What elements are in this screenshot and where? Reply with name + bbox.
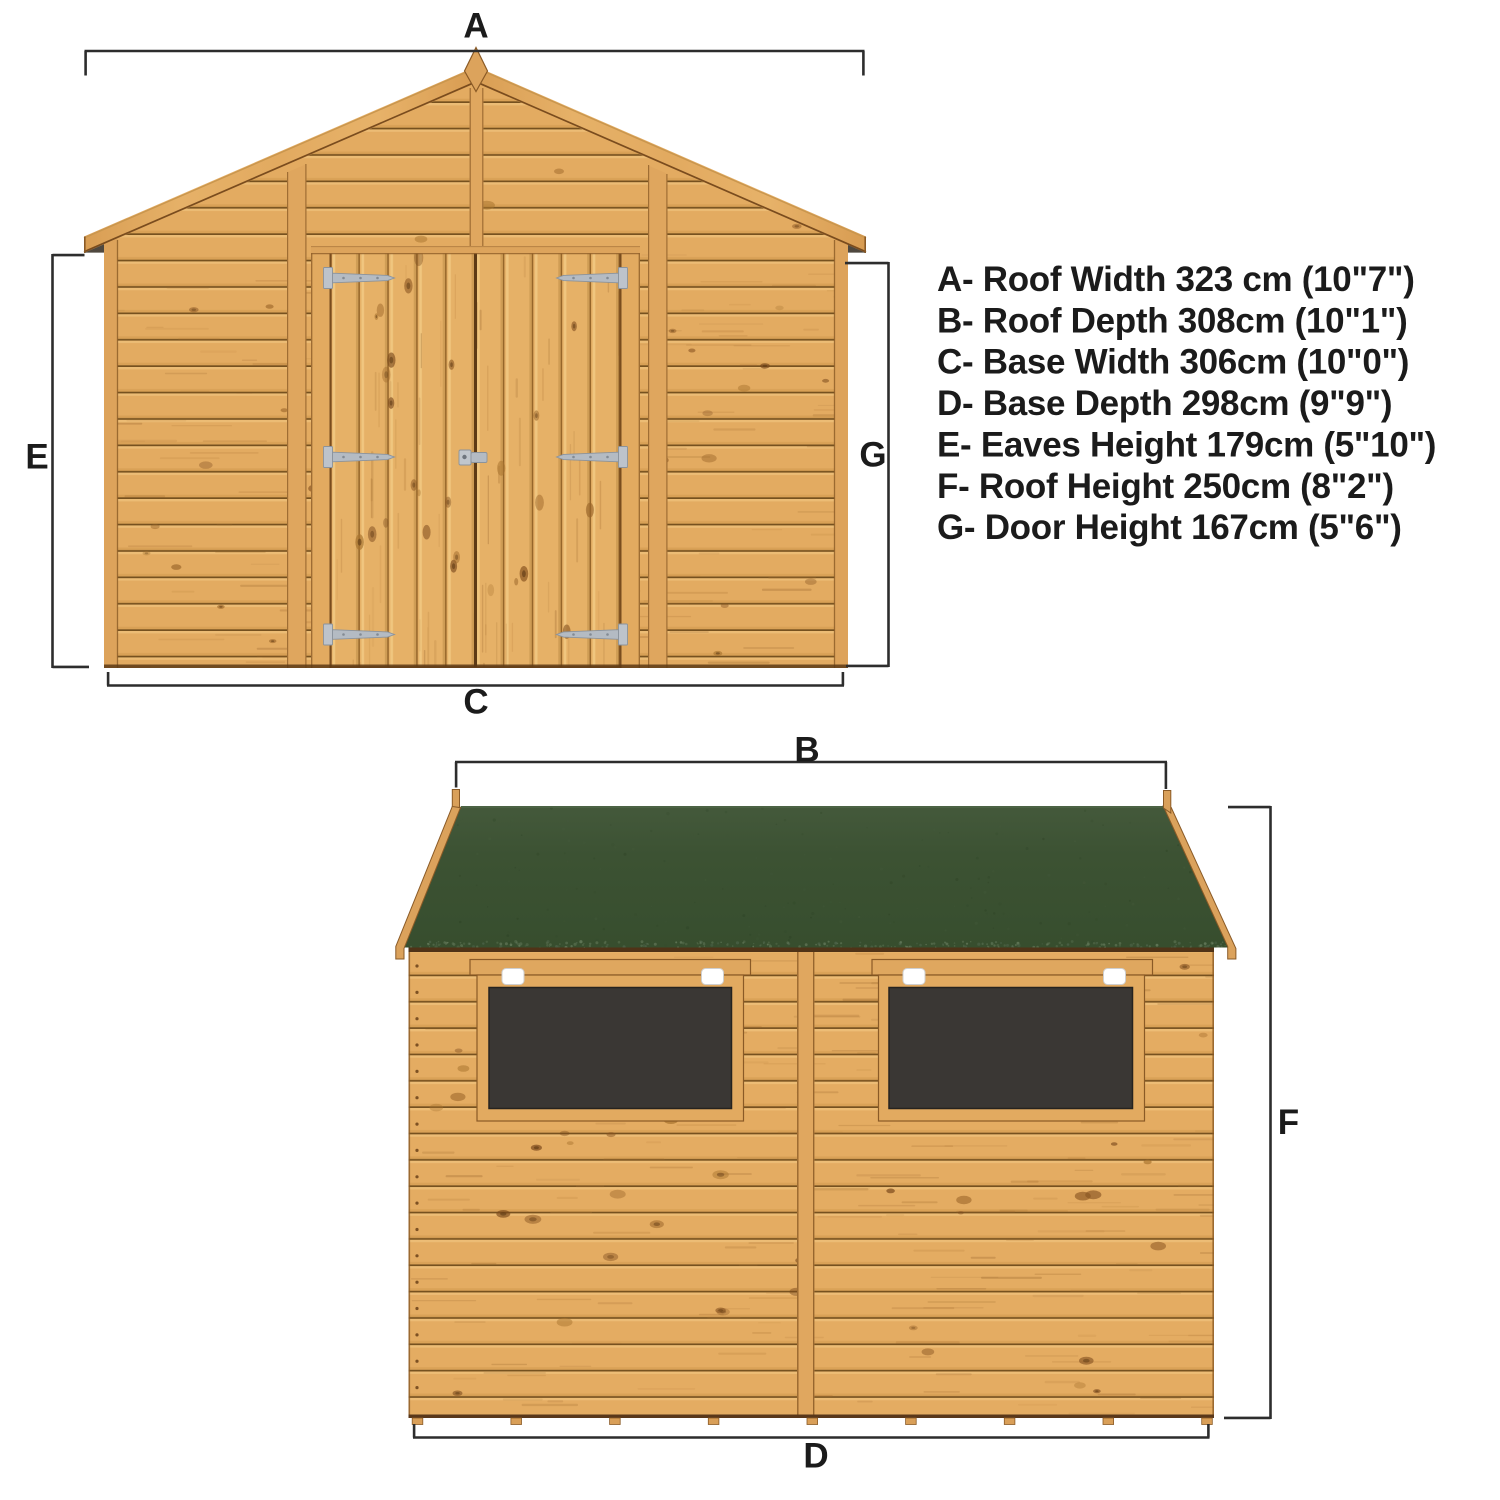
svg-text:B: B <box>794 731 819 770</box>
svg-text:C: C <box>463 683 488 722</box>
svg-text:F- Roof Height 250cm (8"2"): F- Roof Height 250cm (8"2") <box>937 467 1394 506</box>
svg-text:D: D <box>803 1437 828 1476</box>
svg-text:B- Roof Depth 308cm (10"1"): B- Roof Depth 308cm (10"1") <box>937 301 1407 340</box>
svg-text:D- Base Depth 298cm (9"9"): D- Base Depth 298cm (9"9") <box>937 384 1392 423</box>
svg-text:G- Door Height 167cm (5"6"): G- Door Height 167cm (5"6") <box>937 508 1402 547</box>
svg-text:F: F <box>1278 1103 1299 1142</box>
svg-text:A: A <box>463 7 488 46</box>
svg-text:E: E <box>25 438 48 477</box>
svg-text:C- Base Width 306cm (10"0"): C- Base Width 306cm (10"0") <box>937 343 1409 382</box>
svg-text:G: G <box>859 436 886 475</box>
svg-text:E- Eaves Height 179cm (5"10"): E- Eaves Height 179cm (5"10") <box>937 425 1436 464</box>
svg-text:A- Roof Width 323 cm (10"7"): A- Roof Width 323 cm (10"7") <box>937 260 1415 299</box>
